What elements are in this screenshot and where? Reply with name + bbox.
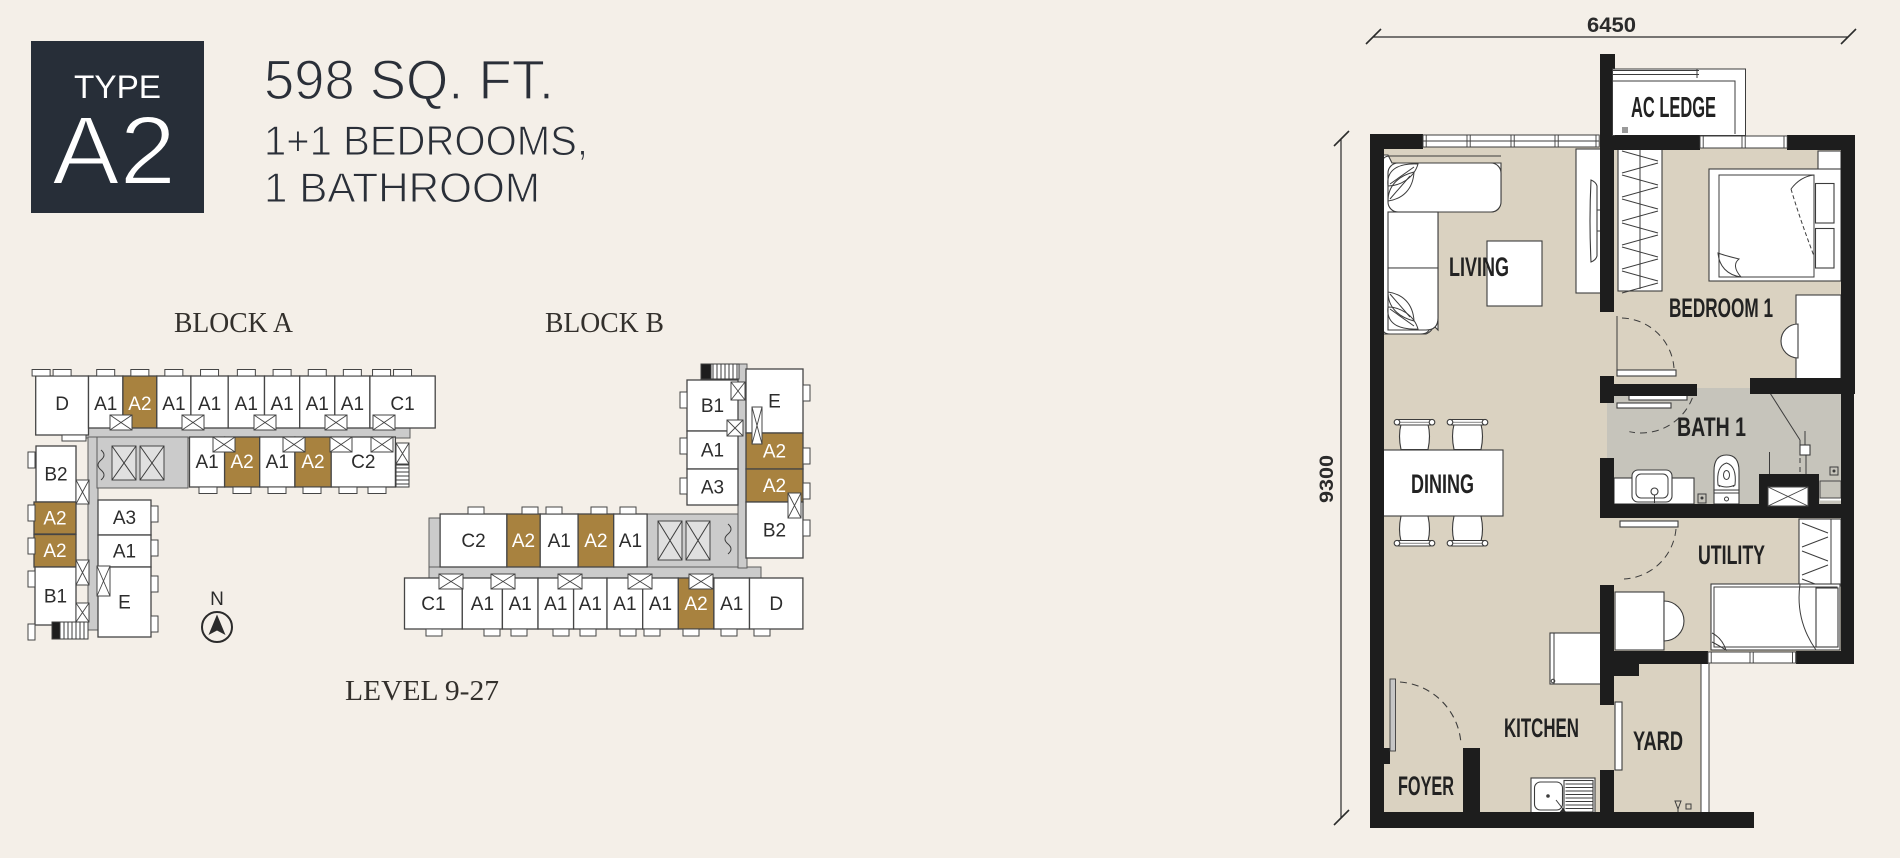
svg-text:A2: A2 <box>763 476 786 497</box>
svg-text:YARD: YARD <box>1633 726 1683 756</box>
svg-text:A1: A1 <box>613 594 636 615</box>
svg-text:A2: A2 <box>43 509 66 530</box>
svg-text:BLOCK B: BLOCK B <box>545 307 664 339</box>
svg-text:A1: A1 <box>266 452 289 473</box>
svg-text:A1: A1 <box>548 531 571 552</box>
svg-text:A1: A1 <box>619 531 642 552</box>
svg-text:A1: A1 <box>471 594 494 615</box>
svg-text:AC LEDGE: AC LEDGE <box>1631 92 1716 124</box>
svg-text:LEVEL 9-27: LEVEL 9-27 <box>345 675 499 707</box>
svg-text:E: E <box>118 593 131 614</box>
svg-text:1+1 BEDROOMS,: 1+1 BEDROOMS, <box>264 117 588 164</box>
svg-text:A2: A2 <box>584 531 607 552</box>
svg-text:A2: A2 <box>230 452 253 473</box>
svg-text:A2: A2 <box>684 594 707 615</box>
svg-text:A1: A1 <box>270 394 293 415</box>
svg-text:A1: A1 <box>306 394 329 415</box>
svg-text:B1: B1 <box>701 396 724 417</box>
svg-text:E: E <box>768 392 781 413</box>
svg-text:LIVING: LIVING <box>1449 252 1509 282</box>
svg-text:A3: A3 <box>113 508 136 529</box>
svg-text:A2: A2 <box>512 531 535 552</box>
svg-text:C2: C2 <box>351 452 375 473</box>
svg-text:D: D <box>769 594 783 615</box>
svg-text:N: N <box>210 589 224 610</box>
svg-text:A1: A1 <box>701 441 724 462</box>
svg-text:9300: 9300 <box>1317 455 1338 503</box>
svg-text:A1: A1 <box>720 594 743 615</box>
svg-text:598 SQ. FT.: 598 SQ. FT. <box>264 48 554 111</box>
svg-text:1 BATHROOM: 1 BATHROOM <box>264 164 540 211</box>
svg-text:A1: A1 <box>162 394 185 415</box>
svg-text:A1: A1 <box>198 394 221 415</box>
svg-text:A1: A1 <box>235 394 258 415</box>
svg-text:A2: A2 <box>128 394 151 415</box>
svg-text:D: D <box>55 394 69 415</box>
svg-text:A1: A1 <box>113 542 136 563</box>
svg-text:C2: C2 <box>461 531 485 552</box>
svg-text:A2: A2 <box>52 96 176 205</box>
svg-text:BEDROOM 1: BEDROOM 1 <box>1669 293 1773 323</box>
svg-text:A1: A1 <box>509 594 532 615</box>
svg-text:A1: A1 <box>544 594 567 615</box>
svg-text:A2: A2 <box>763 442 786 463</box>
svg-text:DINING: DINING <box>1411 469 1474 499</box>
svg-text:C1: C1 <box>421 594 445 615</box>
svg-text:A3: A3 <box>701 478 724 499</box>
svg-text:A1: A1 <box>94 394 117 415</box>
svg-text:KITCHEN: KITCHEN <box>1504 713 1579 743</box>
svg-text:6450: 6450 <box>1587 14 1636 37</box>
svg-text:A1: A1 <box>579 594 602 615</box>
svg-text:UTILITY: UTILITY <box>1698 540 1765 570</box>
svg-text:B2: B2 <box>763 521 786 542</box>
svg-text:A1: A1 <box>195 452 218 473</box>
svg-text:BATH 1: BATH 1 <box>1677 412 1746 442</box>
svg-text:B1: B1 <box>44 587 67 608</box>
svg-text:BLOCK A: BLOCK A <box>174 307 293 339</box>
svg-text:A2: A2 <box>43 541 66 562</box>
svg-text:FOYER: FOYER <box>1398 771 1454 801</box>
svg-text:A1: A1 <box>649 594 672 615</box>
svg-text:B2: B2 <box>44 465 67 486</box>
svg-text:C1: C1 <box>390 394 414 415</box>
svg-text:A1: A1 <box>341 394 364 415</box>
svg-text:A2: A2 <box>301 452 324 473</box>
